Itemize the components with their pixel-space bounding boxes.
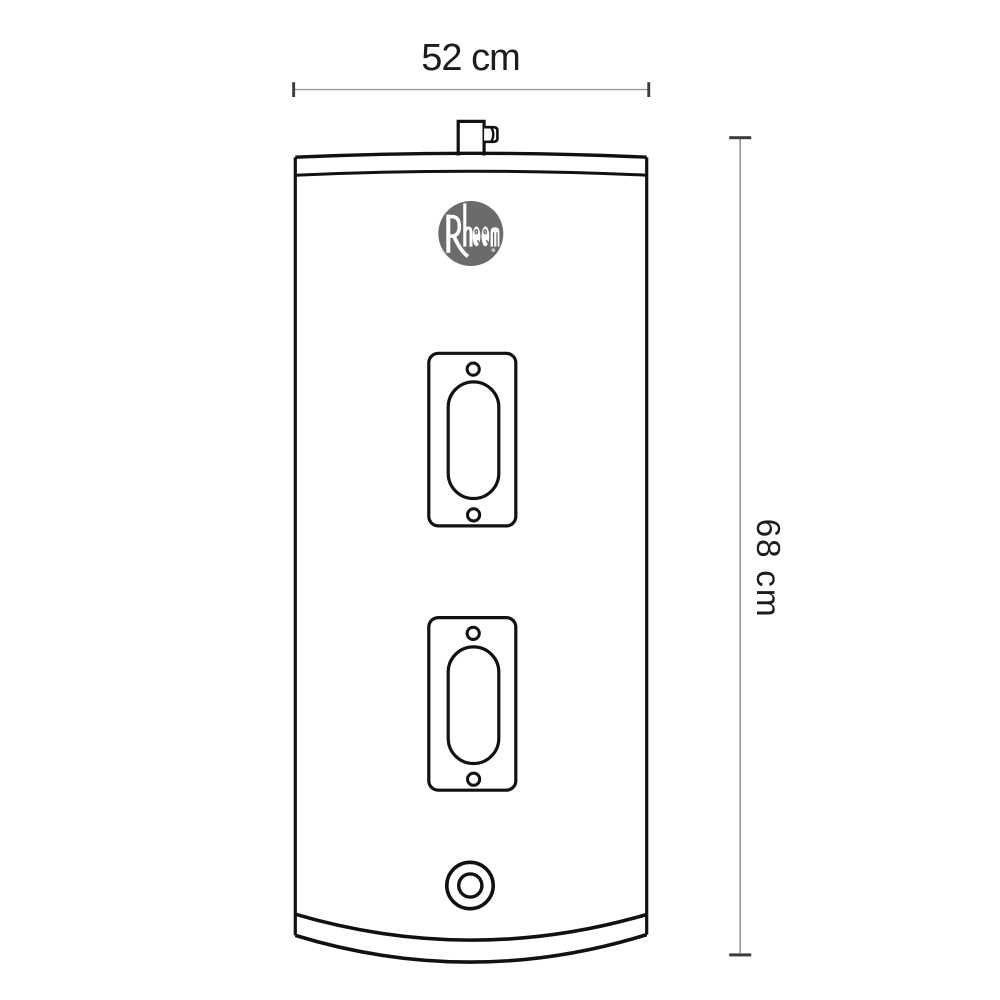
svg-text:68 cm: 68 cm [749,519,786,619]
svg-text:52 cm: 52 cm [421,37,519,79]
